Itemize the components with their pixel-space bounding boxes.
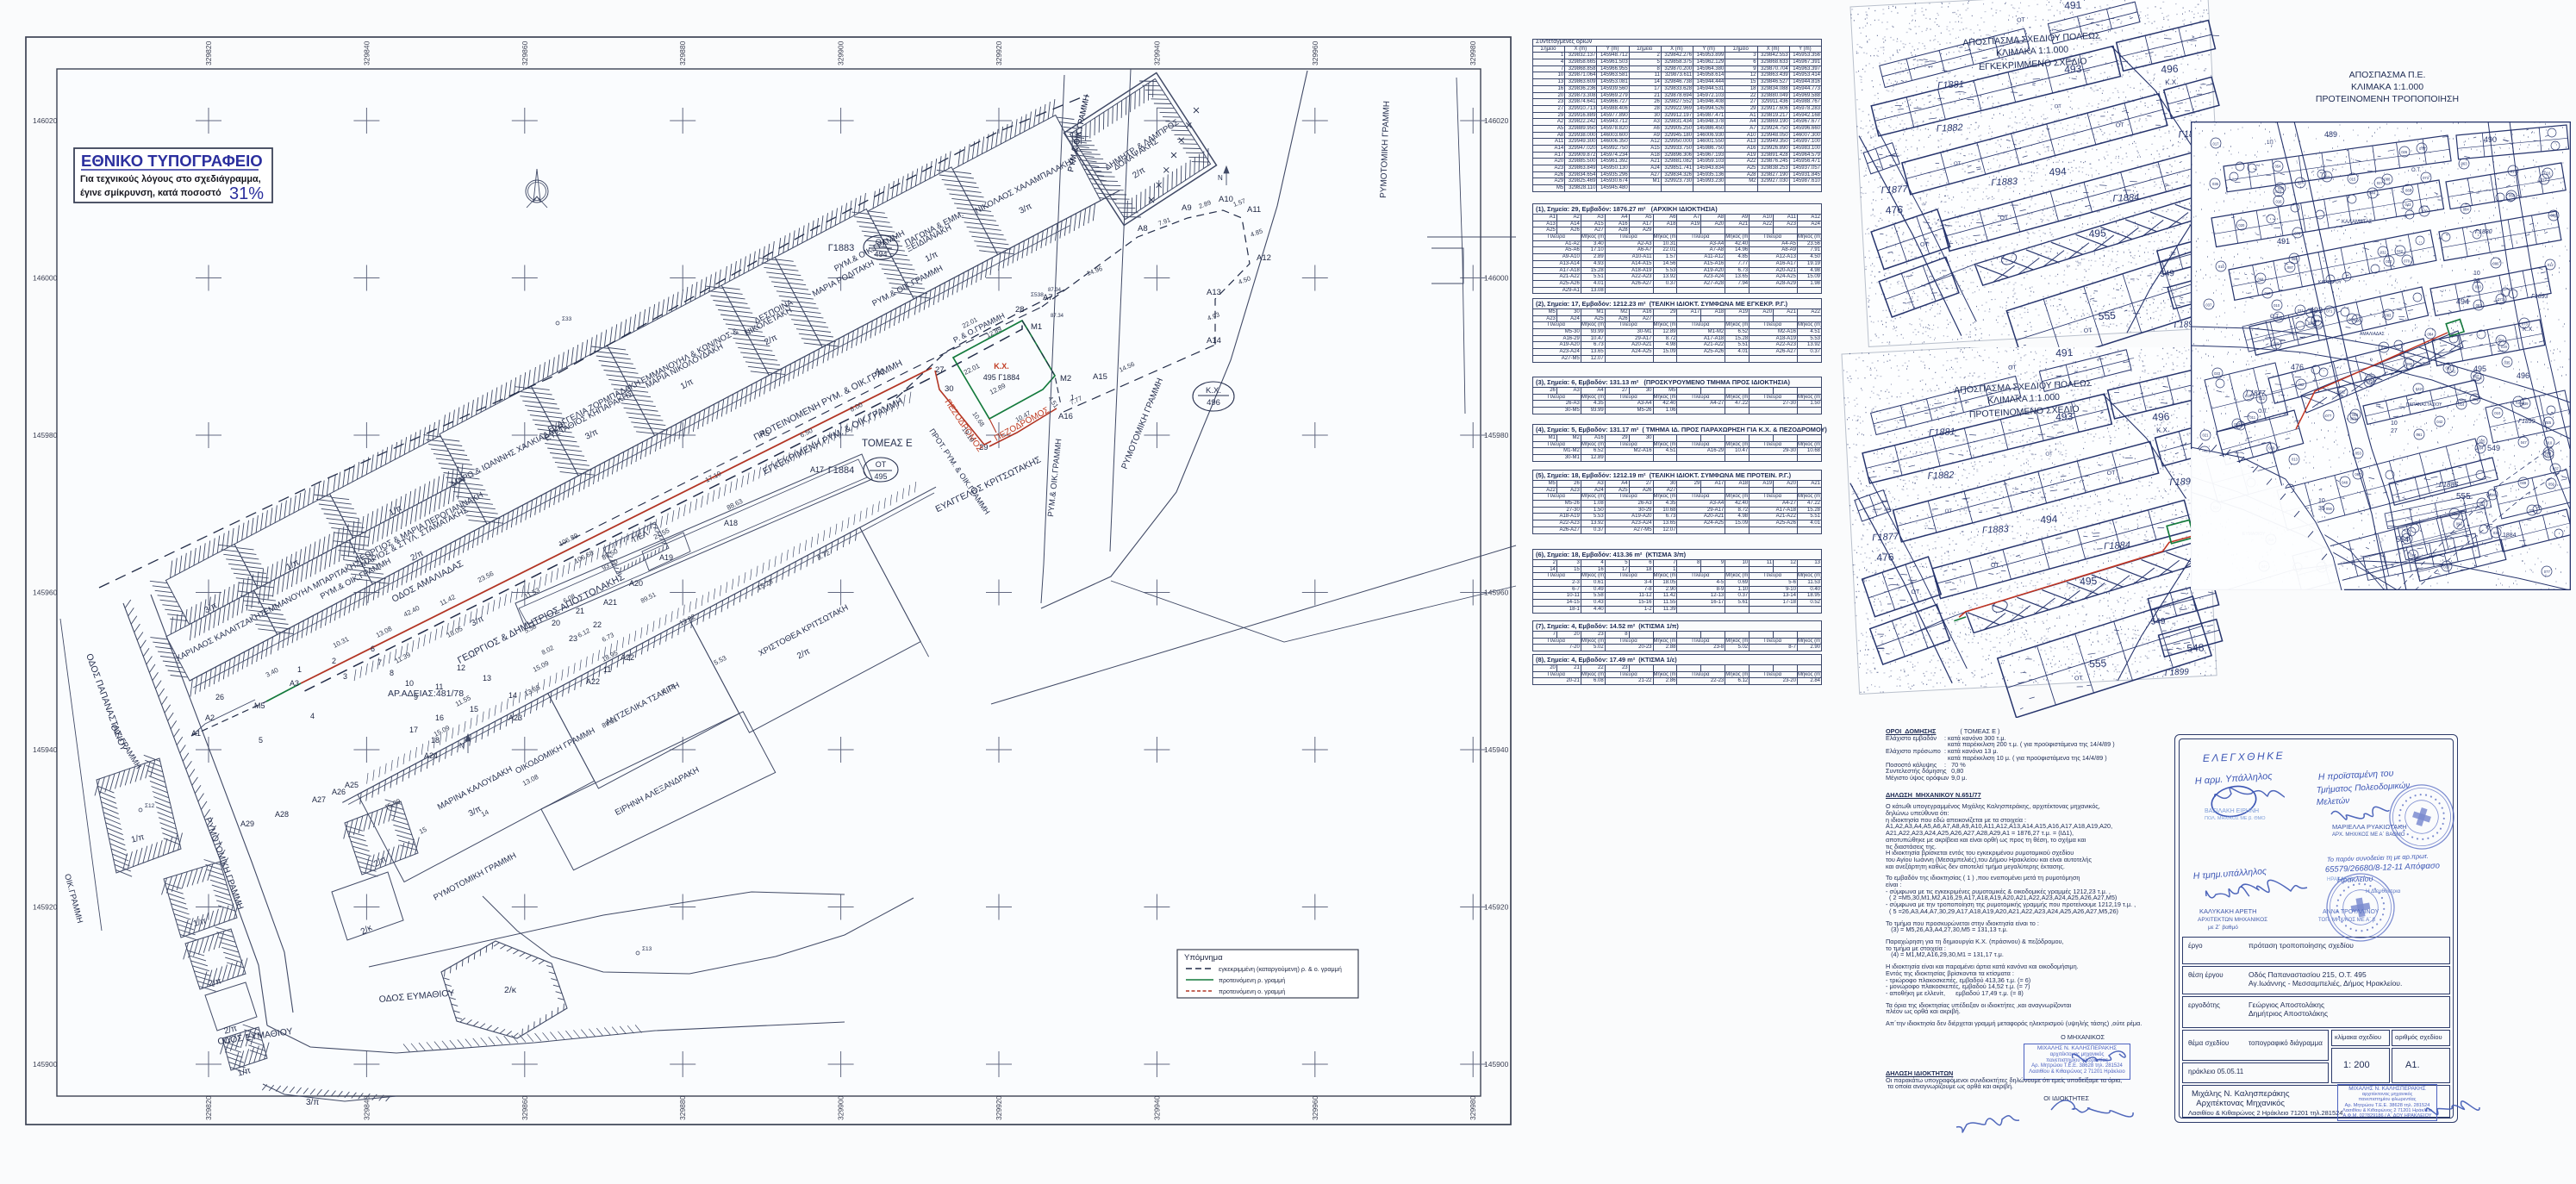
svg-text:146020: 146020 (33, 116, 58, 125)
svg-text:494: 494 (2040, 513, 2058, 526)
svg-text:070: 070 (2419, 146, 2426, 151)
svg-text:070: 070 (2404, 259, 2411, 263)
svg-text:145960: 145960 (33, 589, 58, 597)
svg-text:086: 086 (2493, 261, 2500, 265)
svg-text:6: 6 (371, 645, 375, 653)
svg-text:ΟΤ: ΟΤ (876, 238, 887, 246)
svg-text:A17: A17 (810, 465, 824, 474)
svg-text:496: 496 (2152, 410, 2170, 423)
svg-text:Κ.Χ.: Κ.Χ. (2165, 78, 2179, 87)
svg-text:017: 017 (2213, 141, 2220, 146)
svg-text:011: 011 (2529, 508, 2535, 513)
svg-text:329900: 329900 (837, 41, 845, 65)
svg-text:146020: 146020 (1484, 116, 1509, 125)
svg-text:A29: A29 (240, 819, 254, 828)
svg-text:προτεινόμενη ο. γραμμή: προτεινόμενη ο. γραμμή (1219, 988, 1285, 995)
svg-text:Γ1893: Γ1893 (2531, 294, 2548, 300)
svg-text:ΟΤ: ΟΤ (1999, 215, 2009, 221)
svg-text:Γ1899: Γ1899 (2165, 667, 2190, 677)
svg-text:13: 13 (483, 674, 491, 682)
svg-text:ΑΡ.ΑΔΕΙΑΣ:481/78: ΑΡ.ΑΔΕΙΑΣ:481/78 (388, 689, 464, 699)
svg-text:Γ1877: Γ1877 (1872, 532, 1899, 544)
svg-text:496: 496 (2161, 63, 2179, 76)
svg-text:329880: 329880 (678, 1095, 687, 1120)
svg-text:27: 27 (935, 365, 945, 375)
svg-text:εγκεκριμμένη (καταργούμενη) ρ.: εγκεκριμμένη (καταργούμενη) ρ. & ο. γραμ… (1219, 965, 1342, 973)
svg-text:M5: M5 (254, 701, 265, 710)
svg-text:18: 18 (431, 736, 440, 745)
svg-text:054: 054 (2275, 165, 2282, 169)
svg-text:Ο.Τ.: Ο.Τ. (2411, 168, 2421, 173)
svg-text:073: 073 (2522, 321, 2529, 326)
svg-text:Γ1881: Γ1881 (1929, 427, 1955, 439)
svg-text:329820: 329820 (204, 1095, 213, 1120)
svg-text:22: 22 (593, 620, 602, 629)
svg-text:037: 037 (2443, 564, 2450, 569)
svg-text:87.34: 87.34 (1048, 288, 1062, 293)
svg-text:3: 3 (343, 672, 347, 681)
svg-text:033: 033 (2475, 285, 2482, 290)
svg-text:27: 27 (2391, 428, 2398, 434)
svg-text:489: 489 (2324, 130, 2337, 139)
svg-text:A2: A2 (205, 714, 215, 722)
svg-text:493: 493 (2310, 306, 2323, 315)
svg-text:65579/26680/8-12-11 Απόφασο: 65579/26680/8-12-11 Απόφασο (2325, 861, 2440, 875)
svg-text:495: 495 (2473, 365, 2486, 373)
svg-text:494: 494 (874, 250, 887, 259)
svg-text:ΤΟΠ. ΜΗΧ/ΚΟΣ ΜΕ Α΄ β: ΤΟΠ. ΜΗΧ/ΚΟΣ ΜΕ Α΄ β (2318, 918, 2376, 923)
svg-text:067: 067 (2355, 472, 2361, 477)
svg-text:Μελετών: Μελετών (2317, 795, 2350, 807)
svg-text:146000: 146000 (33, 274, 58, 283)
svg-text:555: 555 (2089, 657, 2107, 670)
svg-text:015: 015 (2349, 177, 2356, 181)
svg-text:A13: A13 (1207, 288, 1221, 297)
svg-text:010: 010 (2265, 291, 2272, 296)
svg-text:329860: 329860 (521, 41, 529, 65)
svg-text:έγινε σμίκρυνση, κατά ποσοστό: έγινε σμίκρυνση, κατά ποσοστό (80, 188, 221, 198)
svg-text:022: 022 (2545, 453, 2552, 458)
svg-text:ΟΤ: ΟΤ (1991, 563, 2000, 570)
svg-text:082: 082 (2298, 383, 2305, 387)
svg-text:476: 476 (2291, 363, 2304, 371)
svg-text:2/κ: 2/κ (504, 985, 517, 995)
svg-text:329980: 329980 (1469, 41, 1477, 65)
svg-text:Η τμημ.υπάλληλος: Η τμημ.υπάλληλος (2192, 866, 2267, 882)
svg-text:1884: 1884 (2503, 533, 2517, 539)
svg-text:A12: A12 (1257, 253, 1271, 263)
svg-text:032: 032 (2380, 250, 2387, 254)
svg-text:ΟΤ: ΟΤ (1911, 589, 1920, 596)
svg-text:ΕΘΝΙΚΟ ΤΥΠΟΓΡΑΦΕΙΟ: ΕΘΝΙΚΟ ΤΥΠΟΓΡΑΦΕΙΟ (81, 152, 263, 170)
svg-text:ΗΡΑΚΛΕΙΟ: ΗΡΑΚΛΕΙΟ (2327, 877, 2354, 882)
svg-text:3/π: 3/π (306, 1098, 319, 1107)
svg-text:M2: M2 (1060, 374, 1071, 383)
svg-text:078: 078 (2294, 232, 2301, 236)
svg-text:329980: 329980 (1469, 1095, 1477, 1120)
svg-text:προτεινόμενη ρ. γραμμή: προτεινόμενη ρ. γραμμή (1219, 976, 1285, 984)
svg-text:ΟΤ: ΟΤ (2106, 470, 2116, 477)
svg-text:495 Γ1884: 495 Γ1884 (983, 373, 1020, 382)
svg-text:ΑΡΧΙΤΕΚΤΩΝ ΜΗΧΑΝΙΚΟΣ: ΑΡΧΙΤΕΚΤΩΝ ΜΗΧΑΝΙΚΟΣ (2198, 917, 2267, 923)
svg-text:044: 044 (2369, 191, 2376, 196)
svg-text:A24: A24 (424, 751, 438, 760)
svg-text:028: 028 (2516, 400, 2523, 404)
svg-text:Για τεχνικούς λόγους στο σχεδι: Για τεχνικούς λόγους στο σχεδιάγραμμα, (80, 174, 261, 184)
svg-text:ΚΑΡΤΕΡΟΥ: ΚΑΡΤΕΡΟΥ (2318, 280, 2342, 285)
svg-text:A7: A7 (1043, 293, 1053, 302)
svg-text:494: 494 (2456, 297, 2469, 306)
svg-text:11: 11 (435, 682, 443, 691)
svg-text:549: 549 (2487, 444, 2500, 452)
svg-text:10: 10 (2473, 271, 2480, 277)
svg-text:034: 034 (2477, 446, 2484, 451)
svg-text:A22: A22 (586, 677, 600, 686)
svg-text:044: 044 (2258, 277, 2265, 281)
svg-text:M1: M1 (1031, 322, 1042, 332)
svg-text:145920: 145920 (33, 903, 58, 912)
svg-text:14: 14 (508, 691, 517, 700)
svg-text:A20: A20 (629, 579, 643, 588)
svg-text:496: 496 (1207, 398, 1220, 408)
svg-text:094: 094 (2410, 553, 2417, 558)
svg-text:058: 058 (2509, 194, 2516, 198)
svg-text:030: 030 (2422, 209, 2429, 214)
svg-text:077: 077 (2325, 414, 2332, 418)
svg-text:Ο.Τ.: Ο.Τ. (2258, 409, 2267, 414)
svg-text:ΟΤ: ΟΤ (2116, 122, 2125, 129)
svg-text:28: 28 (1015, 305, 1025, 315)
svg-text:Σ12: Σ12 (145, 803, 155, 809)
svg-text:329940: 329940 (1152, 41, 1161, 65)
svg-text:039: 039 (2268, 446, 2275, 451)
svg-text:Ο.Τ.: Ο.Τ. (2270, 315, 2280, 320)
svg-text:010: 010 (2494, 411, 2501, 415)
svg-text:A23: A23 (508, 714, 522, 722)
svg-text:027: 027 (2377, 181, 2384, 185)
svg-text:Γ1884: Γ1884 (828, 465, 855, 476)
svg-text:555: 555 (2098, 309, 2116, 322)
svg-text:30: 30 (945, 384, 954, 394)
svg-text:145980: 145980 (1484, 431, 1509, 439)
svg-text:28: 28 (2473, 278, 2480, 284)
svg-text:4: 4 (310, 712, 315, 720)
svg-text:Γ1885: Γ1885 (2439, 481, 2459, 489)
svg-text:21: 21 (576, 607, 584, 615)
svg-text:A11: A11 (1247, 205, 1261, 215)
svg-text:077: 077 (2544, 570, 2551, 574)
svg-text:035: 035 (2212, 182, 2219, 186)
svg-text:014: 014 (2458, 402, 2465, 407)
svg-text:329960: 329960 (1311, 41, 1319, 65)
svg-text:039: 039 (2523, 402, 2529, 406)
svg-text:ΚΑΛΥΚΑΚΗ ΑΡΕΤΗ: ΚΑΛΥΚΑΚΗ ΑΡΕΤΗ (2199, 907, 2257, 915)
svg-text:548: 548 (2186, 641, 2205, 654)
svg-text:26: 26 (215, 693, 224, 701)
svg-text:062: 062 (2352, 413, 2359, 417)
svg-text:081: 081 (2476, 303, 2483, 308)
svg-text:329900: 329900 (837, 1095, 845, 1120)
svg-text:145900: 145900 (1484, 1060, 1509, 1069)
svg-text:17: 17 (409, 726, 418, 734)
svg-text:A28: A28 (275, 810, 289, 819)
svg-text:ΕΛΕΓΧΘΗΚΕ: ΕΛΕΓΧΘΗΚΕ (2203, 750, 2286, 764)
svg-text:N: N (1218, 174, 1223, 182)
svg-text:ΟΤ: ΟΤ (1945, 509, 1953, 514)
svg-text:ΠΟΛ. ΜΗΧ/ΚΟΣ ΜΕ β. ΘΜΟ: ΠΟΛ. ΜΗΧ/ΚΟΣ ΜΕ β. ΘΜΟ (2205, 816, 2266, 821)
svg-text:με Ζ΄ βαθμό: με Ζ΄ βαθμό (2208, 924, 2238, 931)
svg-text:495: 495 (874, 472, 887, 481)
svg-text:5: 5 (259, 736, 263, 745)
svg-text:016: 016 (2276, 199, 2283, 203)
svg-text:ΠΑΠΑΝΑΣΤΑΣΙΟΥ: ΠΑΠΑΝΑΣΤΑΣΙΟΥ (2406, 402, 2442, 408)
svg-text:A25: A25 (345, 781, 359, 789)
svg-text:A26: A26 (332, 788, 346, 796)
svg-text:A10: A10 (1219, 195, 1233, 204)
svg-text:491: 491 (2064, 0, 2082, 12)
svg-text:016: 016 (2544, 171, 2551, 176)
svg-text:ΤΟΜΕΑΣ Ε: ΤΟΜΕΑΣ Ε (862, 439, 913, 449)
svg-text:Γ1877: Γ1877 (1881, 184, 1908, 196)
svg-text:013: 013 (2292, 458, 2298, 462)
svg-text:329840: 329840 (362, 41, 371, 65)
svg-text:Γ1882: Γ1882 (1927, 470, 1954, 482)
svg-text:10: 10 (2391, 421, 2398, 427)
svg-text:036: 036 (2452, 512, 2459, 516)
svg-text:098: 098 (2308, 321, 2315, 325)
svg-text:037: 037 (2205, 302, 2212, 307)
svg-text:010: 010 (2218, 265, 2225, 269)
svg-text:084: 084 (2498, 339, 2504, 343)
svg-text:329920: 329920 (995, 41, 1003, 65)
svg-text:067: 067 (2234, 422, 2241, 427)
svg-text:145900: 145900 (33, 1060, 58, 1069)
svg-text:10: 10 (2318, 498, 2325, 504)
svg-text:87.34: 87.34 (1051, 314, 1064, 319)
svg-text:026: 026 (2490, 493, 2497, 497)
svg-text:16: 16 (435, 714, 444, 722)
svg-text:1Π: 1Π (2267, 140, 2273, 146)
svg-text:015: 015 (2273, 342, 2280, 346)
svg-text:329820: 329820 (204, 41, 213, 65)
svg-text:Η προϊσταμένη του: Η προϊσταμένη του (2318, 768, 2394, 782)
svg-text:12: 12 (457, 664, 465, 672)
svg-text:084: 084 (2463, 208, 2470, 212)
svg-text:2: 2 (332, 657, 336, 665)
svg-text:090: 090 (2355, 318, 2361, 322)
svg-text:ΑΜΑΛΙΑΔΑΣ: ΑΜΑΛΙΑΔΑΣ (2360, 332, 2385, 337)
svg-text:032: 032 (2339, 390, 2346, 395)
svg-text:A27: A27 (312, 795, 326, 804)
svg-text:010: 010 (2546, 440, 2553, 445)
svg-text:043: 043 (2405, 203, 2412, 207)
svg-text:065: 065 (2292, 257, 2298, 261)
svg-text:039: 039 (2520, 481, 2527, 485)
svg-text:329960: 329960 (1311, 1095, 1319, 1120)
svg-text:A16: A16 (1058, 412, 1073, 421)
svg-text:10: 10 (405, 679, 414, 688)
svg-text:047: 047 (2479, 502, 2486, 506)
svg-text:Γ1884: Γ1884 (2104, 540, 2130, 552)
svg-text:9: 9 (414, 693, 418, 701)
svg-text:027: 027 (2473, 374, 2479, 378)
svg-text:145980: 145980 (33, 431, 58, 439)
svg-text:048: 048 (2342, 480, 2348, 484)
svg-text:15: 15 (470, 705, 478, 714)
svg-text:Σ538: Σ538 (1031, 292, 1044, 298)
svg-text:ΟΤ: ΟΤ (876, 460, 887, 469)
svg-text:Η Διευθύντρια: Η Διευθύντρια (2366, 888, 2401, 894)
svg-text:A19: A19 (659, 553, 673, 562)
svg-text:A18: A18 (724, 519, 738, 527)
svg-text:A14: A14 (1207, 336, 1221, 346)
svg-text:23: 23 (569, 634, 577, 643)
svg-text:084: 084 (2473, 397, 2479, 402)
svg-text:145920: 145920 (1484, 903, 1509, 912)
svg-text:042: 042 (2436, 420, 2443, 424)
svg-text:047: 047 (2521, 440, 2528, 445)
svg-text:010: 010 (2273, 303, 2280, 308)
svg-text:053: 053 (2355, 452, 2362, 456)
svg-text:033: 033 (2214, 371, 2221, 376)
svg-text:Γ1877: Γ1877 (2246, 389, 2266, 397)
svg-text:011: 011 (2249, 415, 2255, 420)
svg-text:A3: A3 (290, 679, 299, 688)
svg-text:ΑΝΝΑ ΤΡΟΥΛΛΙΝΟΥ: ΑΝΝΑ ΤΡΟΥΛΛΙΝΟΥ (2323, 909, 2380, 915)
svg-text:088: 088 (2406, 362, 2413, 366)
svg-text:011: 011 (2298, 308, 2304, 313)
svg-text:Υπόμνημα: Υπόμνημα (1184, 953, 1223, 963)
svg-text:A6: A6 (875, 367, 884, 376)
svg-text:083: 083 (2385, 313, 2392, 317)
svg-text:A21: A21 (603, 598, 617, 607)
svg-text:Κ.Χ.: Κ.Χ. (994, 362, 1009, 371)
svg-text:056: 056 (2326, 507, 2333, 511)
svg-text:063: 063 (2461, 162, 2468, 166)
svg-text:073: 073 (2423, 176, 2429, 180)
svg-text:145940: 145940 (33, 745, 58, 754)
svg-text:071: 071 (2498, 297, 2504, 302)
svg-text:555: 555 (2456, 492, 2471, 502)
svg-text:ΟΤ: ΟΤ (2045, 452, 2053, 457)
svg-text:495: 495 (2088, 227, 2106, 240)
svg-text:ΟΤ: ΟΤ (1954, 161, 1962, 166)
svg-text:8: 8 (390, 669, 394, 677)
svg-text:Γ1882: Γ1882 (1936, 122, 1962, 134)
svg-text:20: 20 (552, 619, 560, 627)
svg-text:017: 017 (2511, 169, 2517, 173)
svg-text:088: 088 (2384, 178, 2391, 182)
svg-text:ΒΑΣΙΛΑΚΗ ΕΙΡΗΝΗ: ΒΑΣΙΛΑΚΗ ΕΙΡΗΝΗ (2205, 808, 2259, 814)
svg-text:A15: A15 (1093, 372, 1107, 382)
svg-text:31%: 31% (229, 184, 264, 203)
svg-text:071: 071 (2326, 309, 2333, 314)
svg-text:A5: A5 (760, 429, 770, 438)
svg-text:329920: 329920 (995, 1095, 1003, 1120)
svg-text:010: 010 (2386, 259, 2392, 264)
svg-text:ΟΤ: ΟΤ (1920, 241, 1930, 248)
svg-text:021: 021 (2203, 433, 2210, 438)
svg-text:038: 038 (2493, 531, 2500, 535)
svg-text:491: 491 (2055, 347, 2074, 359)
svg-text:030: 030 (2381, 346, 2388, 350)
svg-text:ΚΑΛΑΜΑΤΑΣ: ΚΑΛΑΜΑΤΑΣ (2342, 220, 2373, 225)
svg-text:A9: A9 (1182, 203, 1192, 213)
svg-text:Τμήματος Πολεοδομικών: Τμήματος Πολεοδομικών (2317, 780, 2411, 795)
svg-text:549: 549 (2150, 617, 2166, 627)
svg-text:064: 064 (2428, 333, 2435, 337)
svg-text:476: 476 (1885, 203, 1903, 216)
svg-text:Σ13: Σ13 (642, 946, 652, 952)
svg-text:Σ33: Σ33 (562, 316, 572, 322)
svg-text:Κ.Χ.: Κ.Χ. (2156, 426, 2170, 434)
svg-text:A8: A8 (1138, 224, 1148, 234)
svg-text:024: 024 (2298, 181, 2305, 185)
svg-text:012: 012 (2548, 263, 2554, 267)
svg-text:11: 11 (603, 665, 611, 674)
svg-text:042: 042 (2397, 249, 2404, 253)
svg-text:476: 476 (1876, 551, 1894, 564)
svg-text:329860: 329860 (521, 1095, 529, 1120)
svg-text:146000: 146000 (1484, 274, 1509, 283)
svg-text:037: 037 (2553, 467, 2560, 471)
svg-text:A1: A1 (191, 729, 201, 738)
svg-text:Κ.Χ.: Κ.Χ. (1206, 386, 1221, 396)
svg-text:087: 087 (2287, 265, 2294, 270)
svg-text:554: 554 (2396, 535, 2409, 544)
svg-text:Γ1884: Γ1884 (2112, 192, 2139, 204)
svg-text:329880: 329880 (678, 41, 687, 65)
svg-text:A22: A22 (621, 653, 634, 662)
svg-text:7: 7 (377, 658, 382, 667)
svg-text:Κ.Χ.: Κ.Χ. (2523, 327, 2534, 333)
svg-text:Γ1883: Γ1883 (828, 243, 855, 253)
svg-text:491: 491 (2277, 237, 2290, 246)
svg-text:329940: 329940 (1152, 1095, 1161, 1120)
svg-text:Η αρμ. Υπάλληλος: Η αρμ. Υπάλληλος (2194, 771, 2273, 787)
svg-text:1: 1 (297, 665, 302, 674)
svg-text:ΟΤ: ΟΤ (2074, 676, 2084, 682)
svg-text:091: 091 (2551, 214, 2558, 218)
svg-text:549: 549 (2160, 269, 2175, 279)
svg-text:020: 020 (2238, 223, 2245, 227)
svg-text:494: 494 (2049, 165, 2067, 178)
svg-text:ΟΤ: ΟΤ (2017, 17, 2026, 24)
svg-text:026: 026 (2401, 150, 2408, 154)
svg-text:037: 037 (2323, 175, 2330, 179)
svg-text:145940: 145940 (1484, 745, 1509, 754)
